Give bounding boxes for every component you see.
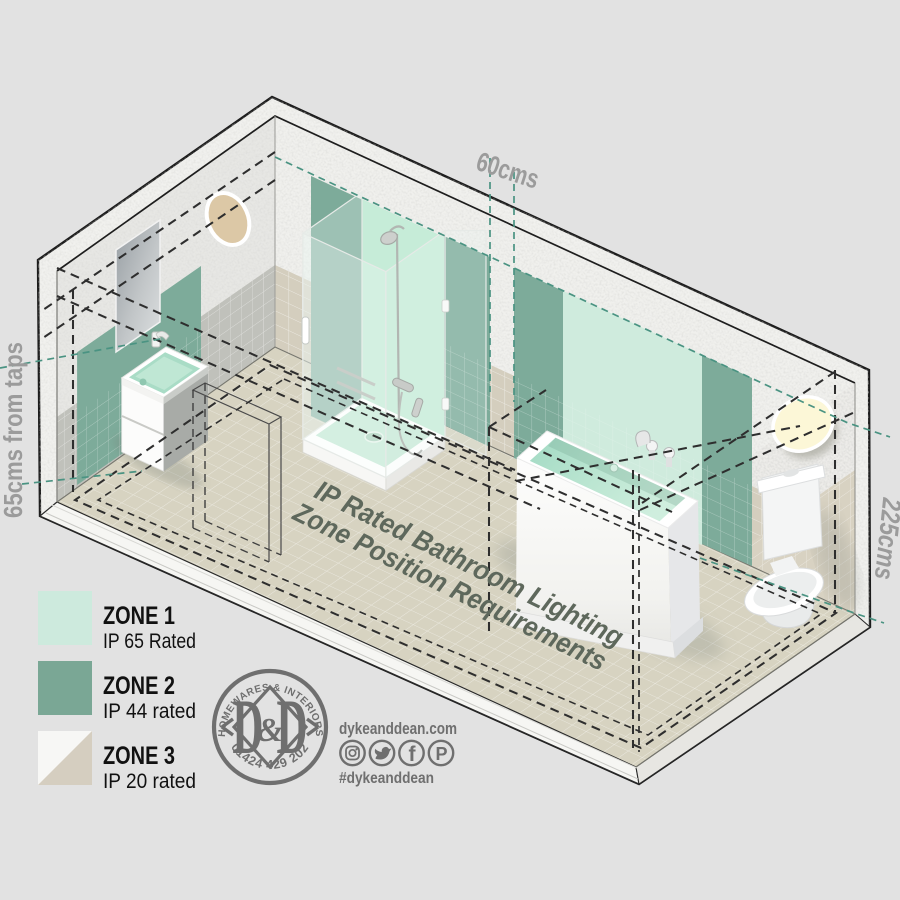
- svg-text:#dykeanddean: #dykeanddean: [339, 770, 434, 787]
- svg-text:dykeanddean.com: dykeanddean.com: [339, 720, 457, 738]
- svg-text:ZONE 3: ZONE 3: [103, 742, 175, 770]
- svg-text:P: P: [435, 744, 447, 764]
- svg-text:f: f: [409, 743, 417, 766]
- svg-text:ZONE 1: ZONE 1: [103, 602, 175, 630]
- svg-text:65cms from taps: 65cms from taps: [0, 342, 28, 518]
- svg-text:&: &: [257, 712, 284, 749]
- svg-text:IP 44 rated: IP 44 rated: [103, 699, 196, 723]
- svg-text:IP 20 rated: IP 20 rated: [103, 769, 196, 793]
- svg-text:ZONE 2: ZONE 2: [103, 672, 175, 700]
- svg-text:IP 65 Rated: IP 65 Rated: [103, 629, 196, 653]
